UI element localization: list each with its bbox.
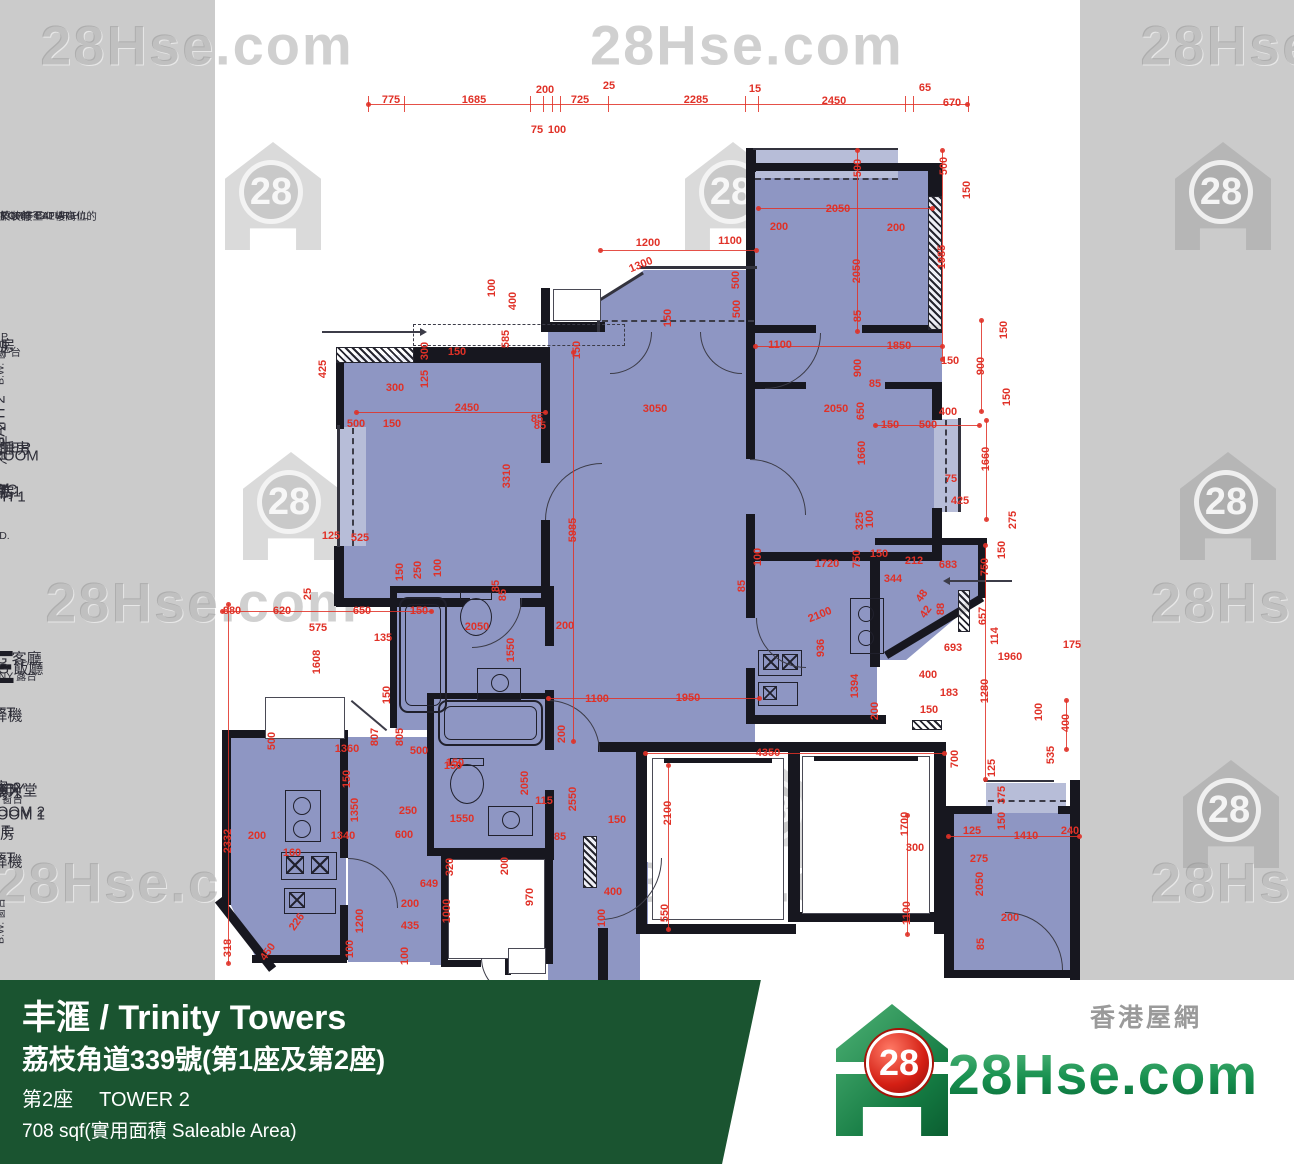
dimension-label: 500 <box>919 419 937 431</box>
dimension-label: 1300 <box>627 255 654 275</box>
dimension-label: 1608 <box>311 650 323 674</box>
dimension-label: 550 <box>659 904 671 922</box>
dimension-label: 500 <box>410 745 428 757</box>
dimension-label: 2050 <box>851 259 863 283</box>
dimension-label: 200 <box>536 84 554 96</box>
dimension-label: 1720 <box>815 558 839 570</box>
dimension-label: 750 <box>851 550 863 568</box>
dimension-label: 150 <box>1001 388 1013 406</box>
dimension-label: 970 <box>524 888 536 906</box>
dimension-label: 114 <box>989 627 1001 645</box>
dimension-label: 100 <box>548 124 566 136</box>
dimension-label: 100 <box>752 548 764 566</box>
dimension-label: 1100 <box>901 901 913 925</box>
dimension-label: 200 <box>248 830 266 842</box>
dimension-label: 300 <box>386 382 404 394</box>
dimension-label: 200 <box>556 620 574 632</box>
dimension-label: 125 <box>986 759 998 777</box>
dimension-label: 807 <box>369 728 381 746</box>
dimension-label: 125 <box>963 825 981 837</box>
dimension-label: 300 <box>906 842 924 854</box>
dimension-label: 880 <box>223 605 241 617</box>
dimension-label: 150 <box>381 686 393 704</box>
dimension-label: 900 <box>852 359 864 377</box>
dimension-label: 620 <box>273 605 291 617</box>
dimension-label: 2450 <box>822 95 846 107</box>
dimension-label: 150 <box>998 321 1010 339</box>
dimension-label: 1550 <box>450 813 474 825</box>
dimension-label: 150 <box>996 541 1008 559</box>
dimension-label: 2450 <box>455 402 479 414</box>
dimension-label: 42 <box>918 604 935 621</box>
estate-title: 丰滙 / Trinity Towers <box>22 990 346 1039</box>
dimension-label: 2050 <box>826 203 850 215</box>
dimension-label: 85 <box>497 589 509 601</box>
dimension-label: 2050 <box>824 403 848 415</box>
dimension-label: 500 <box>347 418 365 430</box>
dimension-label: 1850 <box>887 340 911 352</box>
dimension-label: 1000 <box>441 899 453 923</box>
floorplan-image: 28Hse.com28Hse.com28Hse.com28Hse.com28Hs… <box>0 0 1294 1164</box>
dimension-label: 4350 <box>756 747 780 759</box>
dimension-label: 150 <box>961 181 973 199</box>
dimension-label: 200 <box>401 898 419 910</box>
dimension-label: 425 <box>951 495 969 507</box>
dimension-label: 1660 <box>856 441 868 465</box>
dimension-label: 183 <box>940 687 958 699</box>
dimension-label: 2100 <box>662 801 674 825</box>
dimension-label: 500 <box>731 300 743 318</box>
dimension-label: 1100 <box>718 235 742 247</box>
dimension-label: 1200 <box>636 237 660 249</box>
dimension-label: 85 <box>852 310 864 322</box>
dimension-label: 725 <box>571 94 589 106</box>
dimension-label: 1200 <box>354 909 366 933</box>
dimension-label: 125 <box>322 530 340 542</box>
estate-address: 荔枝角道339號(第1座及第2座) <box>22 1038 385 1077</box>
dimension-label: 1360 <box>335 743 359 755</box>
dimension-label: 75 <box>945 473 957 485</box>
dimension-label: 5985 <box>567 518 579 542</box>
dimension-label: 135 <box>374 632 392 644</box>
dimension-label: 150 <box>571 341 583 359</box>
dimension-label: 535 <box>1045 746 1057 764</box>
dimension-label: 150 <box>394 563 406 581</box>
dimension-label: 693 <box>944 642 962 654</box>
dimension-label: 1985 <box>936 245 948 269</box>
dimension-label: 1685 <box>462 94 486 106</box>
info-banner: 丰滙 / Trinity Towers 荔枝角道339號(第1座及第2座) 第2… <box>0 980 1294 1164</box>
dimension-label: 160 <box>283 847 301 859</box>
dimension-label: 200 <box>556 725 568 743</box>
dimension-label: 2550 <box>567 787 579 811</box>
dimension-label: 1410 <box>1014 830 1038 842</box>
dimension-label: 100 <box>399 947 411 965</box>
dimension-label: 212 <box>905 555 923 567</box>
dimension-label: 525 <box>351 532 369 544</box>
dimension-label: 150 <box>608 814 626 826</box>
dimension-label: 150 <box>941 355 959 367</box>
dimension-label: 85 <box>869 378 881 390</box>
dimension-label: 1280 <box>979 679 991 703</box>
dimension-label: 1350 <box>349 798 361 822</box>
dimension-label: 400 <box>604 886 622 898</box>
dimension-label: 1660 <box>980 447 992 471</box>
dimension-label: 2285 <box>684 94 708 106</box>
dimension-label: 250 <box>399 805 417 817</box>
dimension-label: 1700 <box>899 812 911 836</box>
dimension-label: 200 <box>887 222 905 234</box>
dimension-label: 200 <box>869 702 881 720</box>
dimension-label: 400 <box>1060 714 1072 732</box>
dimension-label: 320 <box>444 858 456 876</box>
dimension-label: 1340 <box>331 830 355 842</box>
dimension-label: 657 <box>977 607 989 625</box>
dimension-label: 1950 <box>676 692 700 704</box>
dimension-label: 775 <box>382 94 400 106</box>
dimension-label: 805 <box>394 728 406 746</box>
dimension-label: 48 <box>914 588 931 605</box>
dimension-label: 500 <box>730 271 742 289</box>
dimension-label: 25 <box>603 80 615 92</box>
dimension-label: 500 <box>266 732 278 750</box>
dimension-label: 400 <box>507 292 519 310</box>
dimension-label: 226 <box>287 911 307 933</box>
dimension-label: 240 <box>1061 825 1079 837</box>
dimension-label: 200 <box>1001 912 1019 924</box>
dimension-label: 85 <box>736 580 748 592</box>
28-badge-icon: 28 <box>866 1030 932 1096</box>
dimension-label: 100 <box>1033 703 1045 721</box>
dimension-label: 318 <box>222 939 234 957</box>
dimension-label: 250 <box>412 561 424 579</box>
dimension-label: 585 <box>500 330 512 348</box>
dimension-label: 100 <box>344 940 356 958</box>
dimension-label: 649 <box>420 878 438 890</box>
dimension-label: 65 <box>919 82 931 94</box>
dimension-label: 88 <box>935 603 947 615</box>
dimension-label: 3050 <box>643 403 667 415</box>
dimension-label: 650 <box>855 402 867 420</box>
dimension-label: 150 <box>881 419 899 431</box>
saleable-area: 708 sqf(實用面積 Saleable Area) <box>22 1116 297 1143</box>
dimension-label: 400 <box>919 669 937 681</box>
dimension-label: 1100 <box>585 693 609 705</box>
dimension-label: 150 <box>444 760 462 772</box>
dimension-label: 150 <box>341 770 353 788</box>
dimension-label: 100 <box>864 510 876 528</box>
dimension-label: 1960 <box>998 651 1022 663</box>
dimension-label: 600 <box>395 829 413 841</box>
dimension-label: 700 <box>949 750 961 768</box>
dimension-label: 2050 <box>519 771 531 795</box>
dimension-label: 150 <box>662 309 674 327</box>
dimension-label: 425 <box>317 360 329 378</box>
dimension-label: 300 <box>419 342 431 360</box>
dimension-label: 500 <box>938 157 950 175</box>
brand-tagline: 香港屋網 <box>1090 998 1202 1034</box>
dimension-label: 1550 <box>505 638 517 662</box>
dimension-label: 150 <box>410 605 428 617</box>
dimension-label: 450 <box>258 941 278 963</box>
dimension-label: 2332 <box>222 829 234 853</box>
dimension-label: 900 <box>975 357 987 375</box>
dimension-label: 150 <box>448 346 466 358</box>
dimension-label: 150 <box>870 548 888 560</box>
dimension-label: 683 <box>939 559 957 571</box>
dimension-label: 1394 <box>849 674 861 698</box>
dimension-label: 85 <box>534 420 546 432</box>
dimension-label: 100 <box>432 559 444 577</box>
dimension-label: 125 <box>419 370 431 388</box>
dimension-label: 100 <box>596 909 608 927</box>
dimension-layer: 7751685200751007252522851524506567050050… <box>0 0 1294 980</box>
dimension-label: 200 <box>770 221 788 233</box>
dimension-label: 2050 <box>974 872 986 896</box>
dimension-label: 2100 <box>806 605 833 625</box>
tower-zh: 第2座 <box>22 1089 73 1111</box>
dimension-label: 1100 <box>768 339 792 351</box>
dimension-label: 100 <box>486 279 498 297</box>
dimension-label: 3310 <box>501 464 513 488</box>
dimension-label: 670 <box>943 97 961 109</box>
dimension-label: 575 <box>309 622 327 634</box>
dimension-label: 275 <box>970 853 988 865</box>
dimension-label: 75 <box>531 124 543 136</box>
dimension-label: 115 <box>535 795 553 807</box>
dimension-label: 175 <box>1063 639 1081 651</box>
brand-wordmark: 28Hse.com <box>948 1042 1258 1108</box>
dimension-label: 400 <box>939 406 957 418</box>
dimension-label: 15 <box>749 83 761 95</box>
dimension-label: 275 <box>1007 511 1019 529</box>
dimension-label: 650 <box>353 605 371 617</box>
dimension-label: 85 <box>554 831 566 843</box>
dimension-label: 500 <box>852 159 864 177</box>
dimension-label: 2050 <box>465 621 489 633</box>
tower-en: TOWER 2 <box>99 1089 190 1111</box>
dimension-label: 375 <box>996 786 1008 804</box>
dimension-label: 435 <box>401 920 419 932</box>
dimension-label: 150 <box>920 704 938 716</box>
dimension-label: 85 <box>975 938 987 950</box>
dimension-label: 936 <box>815 639 827 657</box>
dimension-label: 750 <box>979 558 991 576</box>
dimension-label: 150 <box>996 812 1008 830</box>
dimension-label: 200 <box>499 857 511 875</box>
dimension-label: 344 <box>884 573 902 585</box>
tower-line: 第2座TOWER 2 <box>22 1083 190 1112</box>
dimension-label: 25 <box>302 588 314 600</box>
dimension-label: 150 <box>383 418 401 430</box>
